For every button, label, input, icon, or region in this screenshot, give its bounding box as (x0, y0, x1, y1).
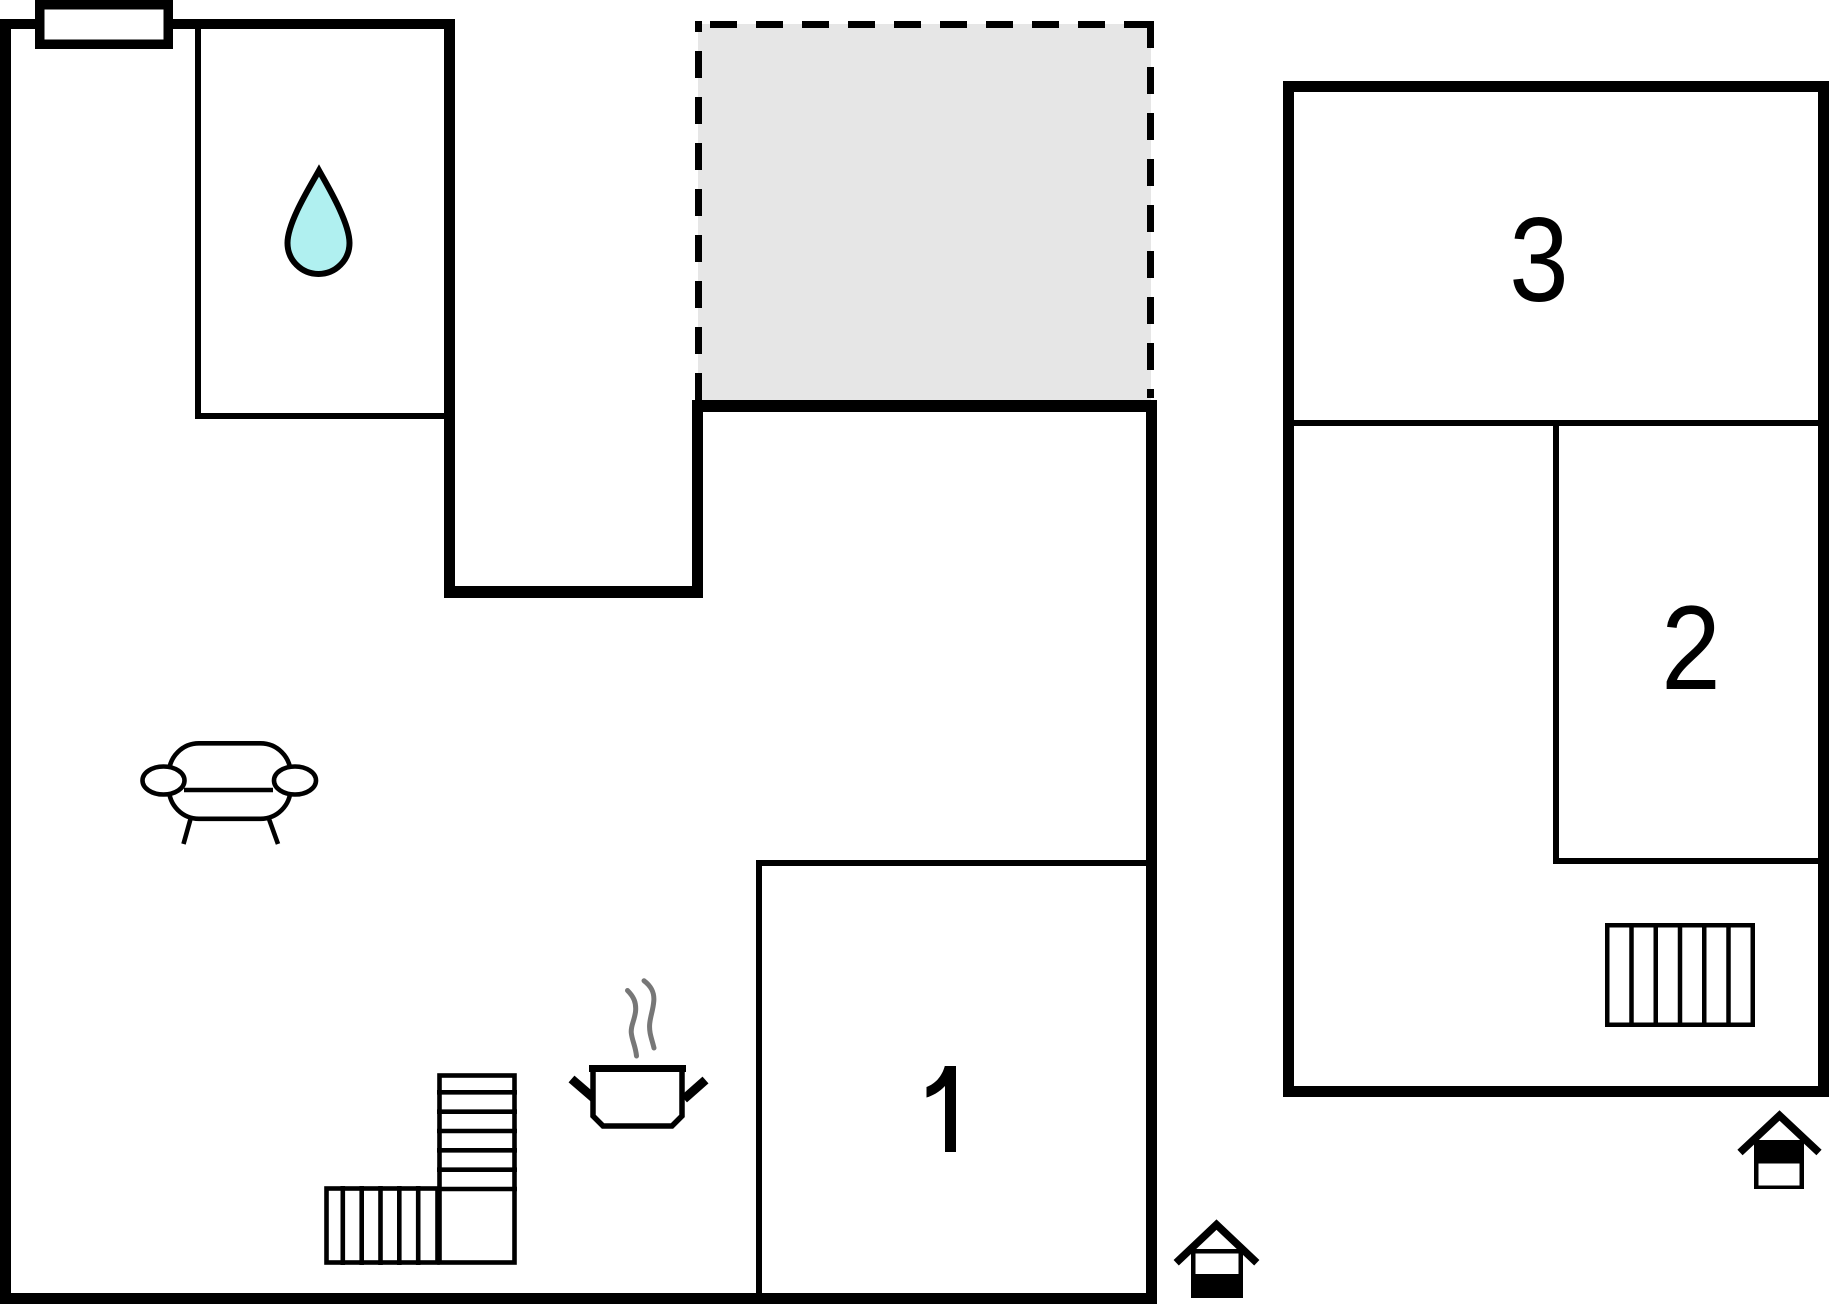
svg-text:3: 3 (1509, 193, 1568, 327)
svg-text:2: 2 (1661, 581, 1720, 715)
